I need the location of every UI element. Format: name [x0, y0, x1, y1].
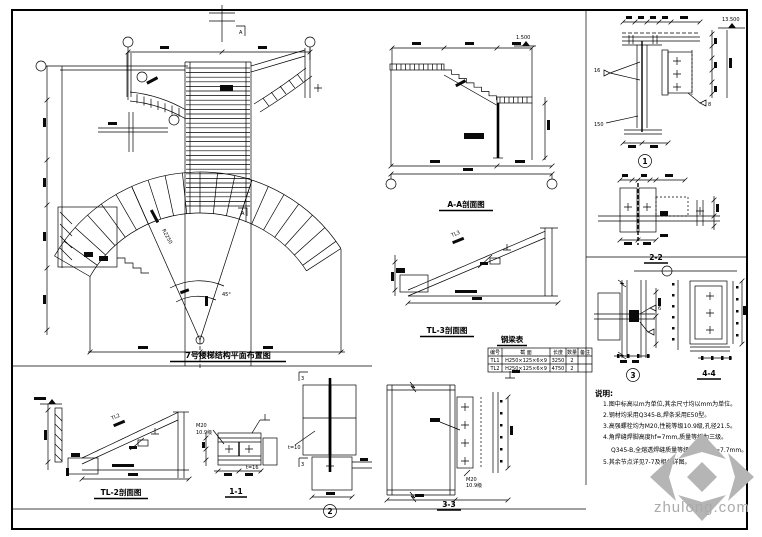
section-3-3: M20 10.9级 3-3	[385, 370, 520, 510]
cad-sheet: A A R2250	[0, 0, 762, 537]
notes-header: 说明:	[595, 388, 613, 398]
aa-elev-label: 1.500	[516, 35, 530, 41]
beam-table-header-3: 数量	[567, 349, 577, 356]
beam-table: 钢梁表 编号 截 面 长度 数量 备注 TL1 H250×125×6×9 325…	[488, 334, 592, 372]
tl3-title: TL-3剖面图	[427, 325, 468, 335]
beam-table-cell: 2	[570, 358, 573, 364]
beam-table-title: 钢梁表	[501, 334, 524, 344]
detail-2: 3 t=10 3 2	[288, 372, 372, 518]
d33-grade-label: 10.9级	[466, 482, 482, 489]
detail-1: 13.500 16 150 8 1	[594, 16, 745, 168]
d11-grade-label: 10.9级	[196, 429, 212, 436]
d1-weld-right-label: 8	[708, 102, 711, 108]
section-a-a: 1.500 A-A剖面图	[386, 35, 557, 211]
d1-elev-label: 13.500	[722, 17, 740, 23]
beam-table-cell: H250×125×6×9	[505, 358, 547, 364]
cad-drawing: A A R2250	[0, 0, 762, 537]
d2-marker-bottom: 3	[301, 462, 304, 468]
d33-title: 3-3	[442, 500, 456, 509]
section-4-4: 4-4	[672, 279, 746, 379]
detail-1-1: M20 10.9级 t=16 1-1	[196, 414, 277, 497]
d1-number: 1	[642, 157, 647, 166]
tl3-beam-label: TL3	[450, 230, 462, 239]
plan-title: 7号楼梯结构平面布置图	[185, 350, 271, 360]
plan-view: A A R2250	[36, 5, 345, 368]
d3-number: 3	[630, 371, 635, 380]
detail-3: 6 3	[594, 266, 737, 382]
beam-table-header-0: 编号	[490, 349, 500, 356]
d11-thk-label: t=16	[246, 465, 259, 471]
beam-table-cell: 4750	[552, 366, 565, 372]
plan-angle-label: 45°	[222, 292, 231, 298]
note-line: 3.高强螺栓均为M20,性能等级10.9级,孔径21.5。	[603, 422, 736, 430]
beam-table-cell: 2	[570, 366, 573, 372]
d2-thk-label: t=10	[288, 445, 301, 451]
tl2-beam-label: TL2	[110, 413, 122, 422]
aa-title: A-A剖面图	[447, 199, 485, 209]
beam-table-header-1: 截 面	[520, 349, 532, 356]
d3-weld-label: 6	[658, 306, 661, 312]
section-tl2: TL2 TL-2剖面图	[34, 397, 191, 499]
d2-marker-top: 3	[301, 376, 304, 382]
d22-title: 2-2	[649, 253, 663, 262]
d11-bolt-label: M20	[196, 423, 207, 429]
d1-weld-left-label: 16	[594, 68, 600, 74]
beam-table-cell: TL2	[489, 366, 499, 372]
watermark-text: zhulong.com	[654, 499, 750, 516]
note-line: 2.钢材均采用Q345-B,焊条采用E50型。	[603, 411, 710, 419]
beam-table-header-2: 长度	[553, 349, 563, 356]
plan-radius-label: R2250	[160, 228, 173, 245]
note-line: 4.角焊缝焊脚高度hf=7mm,质量等级为三级。	[603, 433, 727, 441]
d1-plate-label: 150	[594, 122, 604, 128]
tl2-title: TL-2剖面图	[101, 487, 142, 497]
note-line: 1.图中标高以m为单位,其余尺寸均以mm为单位。	[603, 400, 736, 408]
section-tl3: TL3 TL-3剖面图	[391, 228, 560, 337]
section-2-2: 2-2	[598, 174, 720, 263]
note-line: 5.其余节点详见7-7及相关详图。	[603, 458, 691, 466]
beam-table-cell: 3250	[552, 358, 565, 364]
notes: 说明: 1.图中标高以m为单位,其余尺寸均以mm为单位。 2.钢材均采用Q345…	[595, 388, 747, 466]
d2-number: 2	[327, 507, 332, 516]
d44-title: 4-4	[702, 369, 716, 378]
beam-table-cell: H250×125×6×9	[505, 366, 547, 372]
beam-table-cell: TL1	[489, 358, 499, 364]
beam-table-header-4: 备注	[580, 349, 590, 356]
note-line: Q345-B,全熔透焊缝质量等级为二级,hf=7.7mm。	[611, 446, 747, 454]
plan-cut-marker-a-top: A	[239, 30, 243, 36]
d11-title: 1-1	[229, 487, 243, 496]
